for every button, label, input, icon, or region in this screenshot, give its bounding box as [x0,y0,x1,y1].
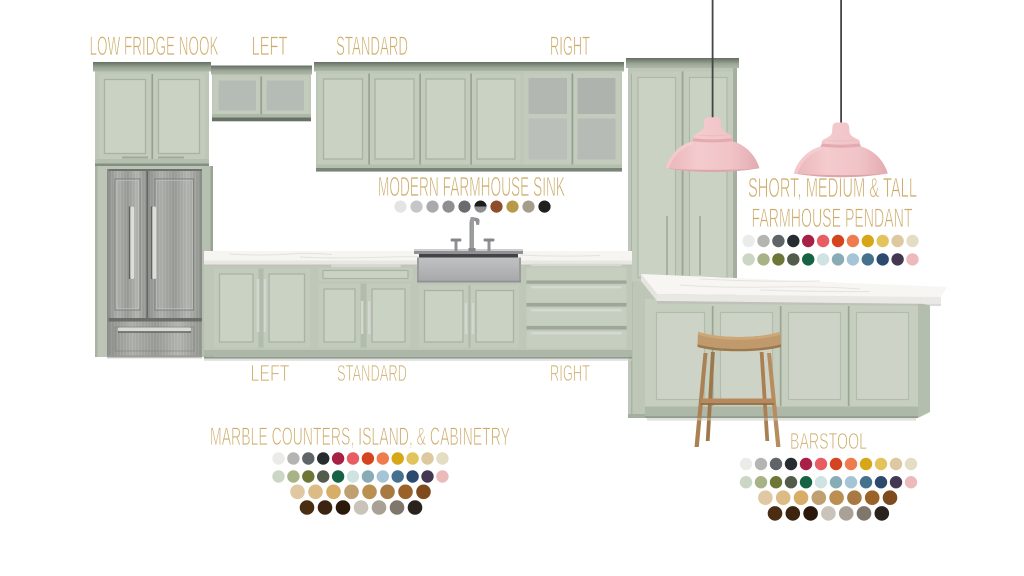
svg-text:LEFT: LEFT [251,360,290,386]
svg-text:MODERN FARMHOUSE SINK: MODERN FARMHOUSE SINK [378,171,565,202]
svg-text:RIGHT: RIGHT [550,31,590,61]
svg-text:BARSTOOL: BARSTOOL [790,428,867,454]
svg-text:LEFT: LEFT [252,31,288,61]
svg-text:RIGHT: RIGHT [550,360,590,386]
svg-text:FARMHOUSE PENDANT: FARMHOUSE PENDANT [752,203,913,233]
svg-text:STANDARD: STANDARD [336,31,408,61]
svg-text:SHORT, MEDIUM & TALL: SHORT, MEDIUM & TALL [748,172,917,203]
svg-text:MARBLE COUNTERS, ISLAND, & CA: MARBLE COUNTERS, ISLAND, & CABINETRY [210,423,510,451]
svg-text:LOW FRIDGE NOOK: LOW FRIDGE NOOK [90,31,219,61]
svg-text:STANDARD: STANDARD [337,360,407,386]
